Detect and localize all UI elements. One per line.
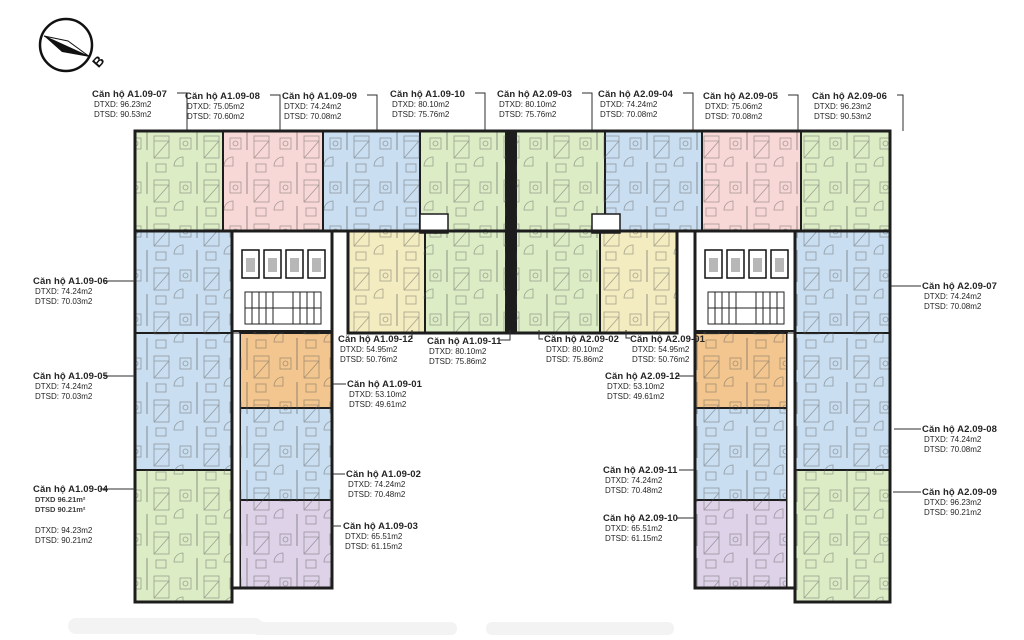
unit-dtsd: DTSD: 75.86m2: [546, 355, 619, 365]
unit-dtxd: DTXD: 74.24m2: [35, 382, 108, 392]
unit-label-a1-09-01: Căn hộ A1.09-01 DTXD: 53.10m2 DTSD: 49.6…: [347, 379, 422, 410]
unit-dtxd: DTXD: 65.51m2: [345, 532, 418, 542]
unit-dtsd: DTSD: 90.21m2: [924, 508, 997, 518]
unit-dtxd: DTXD: 74.24m2: [35, 287, 108, 297]
unit-dtsd: DTSD: 70.08m2: [284, 112, 357, 122]
unit-label-a2-09-03: Căn hộ A2.09-03 DTXD: 80.10m2 DTSD: 75.7…: [497, 89, 572, 120]
unit-dtsd: DTSD: 70.03m2: [35, 392, 108, 402]
unit-name: Căn hộ A1.09-04: [33, 484, 108, 495]
background-smudges: [68, 618, 674, 635]
unit-dtxd: DTXD: 53.10m2: [607, 382, 680, 392]
unit-dtsd: DTSD: 75.86m2: [429, 357, 502, 367]
unit-dtxd: DTXD: 80.10m2: [392, 100, 465, 110]
unit-label-a1-09-11: Căn hộ A1.09-11 DTXD: 80.10m2 DTSD: 75.8…: [427, 336, 502, 367]
unit-dtsd: DTSD: 75.76m2: [499, 110, 572, 120]
unit-name: Căn hộ A1.09-09: [282, 91, 357, 102]
unit-label-a2-09-07: Căn hộ A2.09-07 DTXD: 74.24m2 DTSD: 70.0…: [922, 281, 997, 312]
unit-name: Căn hộ A1.09-05: [33, 371, 108, 382]
background-smudge: [252, 622, 457, 635]
unit-dtxd: DTXD: 75.05m2: [187, 102, 260, 112]
north-label: B: [89, 52, 108, 70]
unit-dtxd: DTXD: 96.23m2: [94, 100, 167, 110]
unit-name: Căn hộ A2.09-03: [497, 89, 572, 100]
unit-name: Căn hộ A2.09-12: [605, 371, 680, 382]
leader-line: [897, 95, 903, 131]
unit-name: Căn hộ A2.09-05: [703, 91, 778, 102]
unit-label-a1-09-03: Căn hộ A1.09-03 DTXD: 65.51m2 DTSD: 61.1…: [343, 521, 418, 552]
unit-label-a2-09-01: Căn hộ A2.09-01 DTXD: 54.95m2 DTSD: 50.7…: [630, 334, 705, 365]
unit-dtxd: DTXD: 75.06m2: [705, 102, 778, 112]
unit-label-a1-09-05: Căn hộ A1.09-05 DTXD: 74.24m2 DTSD: 70.0…: [33, 371, 108, 402]
unit-dtxd: DTXD: 74.24m2: [924, 292, 997, 302]
unit-dtxd: DTXD: 80.10m2: [499, 100, 572, 110]
unit-label-a1-09-06: Căn hộ A1.09-06 DTXD: 74.24m2 DTSD: 70.0…: [33, 276, 108, 307]
unit-dtxd: DTXD: 54.95m2: [340, 345, 413, 355]
unit-dtxd: DTXD: 54.95m2: [632, 345, 705, 355]
leader-line: [582, 93, 592, 130]
unit-dtxd: DTXD: 94.23m2: [35, 526, 92, 536]
unit-dtxd: DTXD: 96.23m2: [924, 498, 997, 508]
compass: B: [40, 19, 107, 71]
leader-line: [788, 95, 798, 130]
unit-label-a2-09-12: Căn hộ A2.09-12 DTXD: 53.10m2 DTSD: 49.6…: [605, 371, 680, 402]
unit-name: Căn hộ A2.09-04: [598, 89, 673, 100]
unit-name: Căn hộ A1.09-11: [427, 336, 502, 347]
unit-name: Căn hộ A2.09-07: [922, 281, 997, 292]
unit-name: Căn hộ A2.09-09: [922, 487, 997, 498]
unit-name: Căn hộ A1.09-12: [338, 334, 413, 345]
unit-dtxd: DTXD: 96.23m2: [814, 102, 887, 112]
unit-name: Căn hộ A1.09-06: [33, 276, 108, 287]
unit-dtxd: DTXD: 74.24m2: [605, 476, 678, 486]
unit-dtxd: DTXD: 74.24m2: [348, 480, 421, 490]
unit-dtsd: DTSD: 70.08m2: [924, 445, 997, 455]
unit-label-a2-09-08: Căn hộ A2.09-08 DTXD: 74.24m2 DTSD: 70.0…: [922, 424, 997, 455]
unit-label-a2-09-04: Căn hộ A2.09-04 DTXD: 74.24m2 DTSD: 70.0…: [598, 89, 673, 120]
leader-line: [367, 95, 377, 130]
unit-dtsd: DTSD: 75.76m2: [392, 110, 465, 120]
unit-label-a1-09-12: Căn hộ A1.09-12 DTXD: 54.95m2 DTSD: 50.7…: [338, 334, 413, 365]
unit-dtxd: DTXD: 74.24m2: [284, 102, 357, 112]
unit-dtsd: DTSD: 90.53m2: [814, 112, 887, 122]
unit-dtsd: DTSD: 49.61m2: [349, 400, 422, 410]
unit-dtsd: DTSD: 70.48m2: [348, 490, 421, 500]
unit-dtsd: DTSD: 49.61m2: [607, 392, 680, 402]
unit-name: Căn hộ A1.09-07: [92, 89, 167, 100]
unit-dtsd: DTSD: 70.48m2: [605, 486, 678, 496]
compass-needle-outline: [44, 36, 90, 57]
background-smudge: [486, 622, 674, 635]
unit-name: Căn hộ A1.09-10: [390, 89, 465, 100]
unit-label-a2-09-02: Căn hộ A2.09-02 DTXD: 80.10m2 DTSD: 75.8…: [544, 334, 619, 365]
leader-line: [683, 93, 693, 130]
unit-dtxd: DTXD: 74.24m2: [924, 435, 997, 445]
unit-dtxd: DTXD: 80.10m2: [429, 347, 502, 357]
unit-dtsd: DTSD: 61.15m2: [345, 542, 418, 552]
unit-name: Căn hộ A1.09-08: [185, 91, 260, 102]
unit-name: Căn hộ A2.09-01: [630, 334, 705, 345]
unit-name: Căn hộ A1.09-02: [346, 469, 421, 480]
unit-dtsd: DTSD: 70.08m2: [600, 110, 673, 120]
unit-label-a2-09-06: Căn hộ A2.09-06 DTXD: 96.23m2 DTSD: 90.5…: [812, 91, 887, 122]
unit-label-a1-09-02: Căn hộ A1.09-02 DTXD: 74.24m2 DTSD: 70.4…: [346, 469, 421, 500]
unit-dtxd: DTXD: 53.10m2: [349, 390, 422, 400]
unit-dtsd: DTSD: 70.08m2: [705, 112, 778, 122]
unit-dtsd: DTSD: 70.08m2: [924, 302, 997, 312]
unit-dtsd: DTSD: 50.76m2: [632, 355, 705, 365]
unit-name: Căn hộ A2.09-11: [603, 465, 678, 476]
unit-label-a1-09-04-areas: DTXD: 94.23m2 DTSD: 90.21m2: [33, 526, 92, 546]
unit-name: Căn hộ A1.09-01: [347, 379, 422, 390]
unit-dtsd: DTSD: 70.60m2: [187, 112, 260, 122]
core-left: [232, 231, 332, 331]
unit-label-a1-09-09: Căn hộ A1.09-09 DTXD: 74.24m2 DTSD: 70.0…: [282, 91, 357, 122]
unit-name: Căn hộ A1.09-03: [343, 521, 418, 532]
unit-label-a1-09-08: Căn hộ A1.09-08 DTXD: 75.05m2 DTSD: 70.6…: [185, 91, 260, 122]
unit-dtxd: DTXD: 65.51m2: [605, 524, 678, 534]
unit-label-a2-09-05: Căn hộ A2.09-05 DTXD: 75.06m2 DTSD: 70.0…: [703, 91, 778, 122]
unit-name: Căn hộ A2.09-02: [544, 334, 619, 345]
floor-plan-page: B Căn hộ A1.09-07 DTXD: 96.23m2 DTSD: 90…: [0, 0, 1024, 640]
unit-label-a2-09-11: Căn hộ A2.09-11 DTXD: 74.24m2 DTSD: 70.4…: [603, 465, 678, 496]
unit-label-a1-09-07: Căn hộ A1.09-07 DTXD: 96.23m2 DTSD: 90.5…: [92, 89, 167, 120]
unit-dtsd: DTSD: 90.21m2: [35, 536, 92, 546]
unit-label-a2-09-09: Căn hộ A2.09-09 DTXD: 96.23m2 DTSD: 90.2…: [922, 487, 997, 518]
unit-dtsd: DTSD: 61.15m2: [605, 534, 678, 544]
unit-dtsd-ghost: DTSD 90.21m²: [35, 505, 108, 515]
unit-name: Căn hộ A2.09-08: [922, 424, 997, 435]
core-right: [695, 231, 795, 331]
unit-dtxd-ghost: DTXD 96.21m²: [35, 495, 108, 505]
unit-dtsd: DTSD: 90.53m2: [94, 110, 167, 120]
unit-dtsd: DTSD: 50.76m2: [340, 355, 413, 365]
leader-line: [475, 93, 485, 130]
unit-label-a1-09-10: Căn hộ A1.09-10 DTXD: 80.10m2 DTSD: 75.7…: [390, 89, 465, 120]
unit-dtxd: DTXD: 80.10m2: [546, 345, 619, 355]
unit-dtsd: DTSD: 70.03m2: [35, 297, 108, 307]
unit-name: Căn hộ A2.09-10: [603, 513, 678, 524]
background-smudge: [68, 618, 263, 634]
unit-label-a2-09-10: Căn hộ A2.09-10 DTXD: 65.51m2 DTSD: 61.1…: [603, 513, 678, 544]
unit-dtxd: DTXD: 74.24m2: [600, 100, 673, 110]
unit-label-a1-09-04: Căn hộ A1.09-04 DTXD 96.21m² DTSD 90.21m…: [33, 484, 108, 514]
unit-name: Căn hộ A2.09-06: [812, 91, 887, 102]
leader-line: [270, 95, 280, 130]
